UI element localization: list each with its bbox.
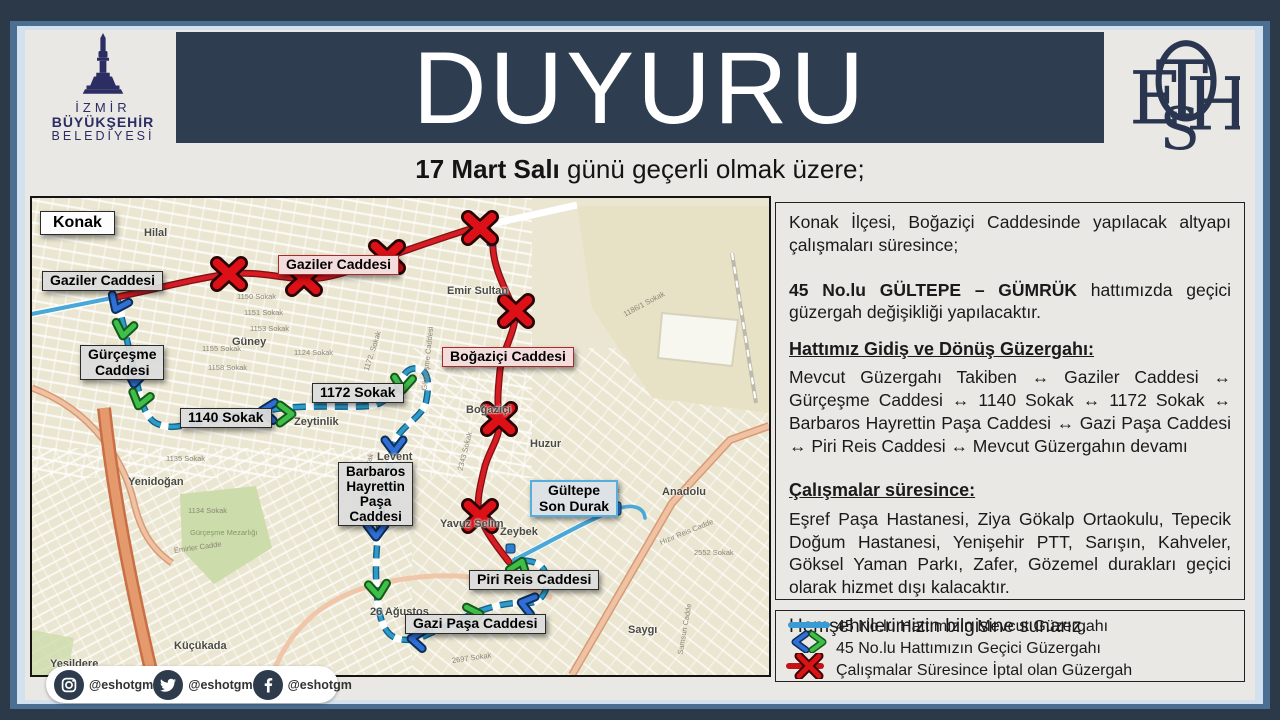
map-place: Yavuz Selim xyxy=(440,518,504,530)
legend-item-cancelled: Çalışmalar Süresince İptal olan Güzergah xyxy=(836,660,1132,682)
map-street: 1153 Sokak xyxy=(250,324,289,333)
legend-cancelled-icon xyxy=(786,653,832,679)
izmir-municipality-logo: İZMİR BÜYÜKŞEHİR BELEDİYESİ xyxy=(30,33,176,145)
map-canvas xyxy=(32,198,769,675)
municipality-name: İZMİR BÜYÜKŞEHİR BELEDİYESİ xyxy=(52,101,155,144)
map-place: Zeytinlik xyxy=(294,416,339,428)
map-street: 1151 Sokak xyxy=(244,308,283,317)
map-place: Zeybek xyxy=(500,526,538,538)
social-bar: @eshotgm @eshotgm @eshotgm xyxy=(46,666,338,703)
stops-description: Eşref Paşa Hastanesi, Ziya Gökalp Ortaok… xyxy=(789,508,1231,599)
map-street: 2552 Sokak xyxy=(694,548,734,557)
info-panel: Konak İlçesi, Boğaziçi Caddesinde yapıla… xyxy=(775,202,1245,600)
subtitle: 17 Mart Salı günü geçerli olmak üzere; xyxy=(176,154,1104,185)
map-place: Hilal xyxy=(144,227,167,239)
map-street: 1150 Sokak xyxy=(237,292,276,301)
instagram-icon xyxy=(54,670,84,700)
panel-line-change: 45 No.lu GÜLTEPE – GÜMRÜK hattımızda geç… xyxy=(789,279,1231,325)
map-label-gaziler-left: Gaziler Caddesi xyxy=(42,271,163,291)
map-street: 1135 Sokak xyxy=(166,454,205,463)
map-place: Emir Sultan xyxy=(447,285,508,297)
municipality-line1: İZMİR xyxy=(52,101,155,115)
map-label-gazi-pasa: Gazi Paşa Caddesi xyxy=(405,614,546,634)
map-street: Gürçeşme Mezarlığı xyxy=(190,528,258,537)
eshot-logo: E T H S xyxy=(1126,34,1240,154)
map-legend: 45 No.lu Hattımızın Mevcut Güzergahı 45 … xyxy=(775,610,1245,682)
works-heading: Çalışmalar süresince: xyxy=(789,479,1231,502)
map-label-1140-sokak: 1140 Sokak xyxy=(180,408,272,428)
map-street: 1134 Sokak xyxy=(188,506,227,515)
legend-item-current: 45 No.lu Hattımızın Mevcut Güzergahı xyxy=(836,616,1132,638)
title-band: DUYURU xyxy=(176,32,1104,143)
map-label-gaziler-center: Gaziler Caddesi xyxy=(278,255,399,275)
map-place: Yenidoğan xyxy=(128,476,184,488)
route-map: Hilal Güney Emir Sultan Zeytinlik Levent… xyxy=(30,196,771,677)
map-place: Anadolu xyxy=(662,486,706,498)
legend-item-temporary: 45 No.lu Hattımızın Geçici Güzergahı xyxy=(836,638,1132,660)
map-place: Saygı xyxy=(628,624,657,636)
map-label-konak: Konak xyxy=(40,211,115,235)
map-place: Küçükada xyxy=(174,640,227,652)
route-description: Mevcut Güzergahı Takiben ↔ Gaziler Cadde… xyxy=(789,366,1231,457)
subtitle-date: 17 Mart Salı xyxy=(415,154,560,184)
map-label-piri-reis: Piri Reis Caddesi xyxy=(469,570,599,590)
map-place: Huzur xyxy=(530,438,561,450)
map-street: 1155 Sokak xyxy=(202,344,241,353)
map-label-gurcesme: Gürçeşme Caddesi xyxy=(80,345,164,380)
social-facebook[interactable]: @eshotgm xyxy=(253,670,352,700)
map-label-1172-sokak: 1172 Sokak xyxy=(312,383,404,403)
panel-intro: Konak İlçesi, Boğaziçi Caddesinde yapıla… xyxy=(789,211,1231,257)
municipality-line3: BELEDİYESİ xyxy=(52,130,155,144)
eshot-letter-s: S xyxy=(1160,94,1200,154)
social-twitter[interactable]: @eshotgm xyxy=(153,670,252,700)
announcement-poster: İZMİR BÜYÜKŞEHİR BELEDİYESİ DUYURU 17 Ma… xyxy=(0,0,1280,720)
instagram-handle: @eshotgm xyxy=(89,678,153,692)
panel-line-name: 45 No.lu GÜLTEPE – GÜMRÜK xyxy=(789,280,1077,300)
facebook-handle: @eshotgm xyxy=(288,678,352,692)
map-street: 1158 Sokak xyxy=(208,363,247,372)
page-title: DUYURU xyxy=(413,37,867,139)
map-label-barbaros: Barbaros Hayrettin Paşa Caddesi xyxy=(338,462,413,526)
map-facility-area xyxy=(658,313,738,366)
social-instagram[interactable]: @eshotgm xyxy=(54,670,153,700)
route-heading: Hattımız Gidiş ve Dönüş Güzergahı: xyxy=(789,338,1231,361)
map-place: Boğaziçi xyxy=(466,404,511,416)
municipality-line2: BÜYÜKŞEHİR xyxy=(52,115,155,130)
map-label-bogazici: Boğaziçi Caddesi xyxy=(442,347,574,367)
twitter-icon xyxy=(153,670,183,700)
twitter-handle: @eshotgm xyxy=(188,678,252,692)
clock-tower-icon xyxy=(80,33,126,99)
map-street: 1124 Sokak xyxy=(294,348,333,357)
legend-route-icon xyxy=(786,619,832,653)
map-label-gultepe: Gültepe Son Durak xyxy=(530,480,618,517)
subtitle-rest: günü geçerli olmak üzere; xyxy=(560,154,865,184)
facebook-icon xyxy=(253,670,283,700)
